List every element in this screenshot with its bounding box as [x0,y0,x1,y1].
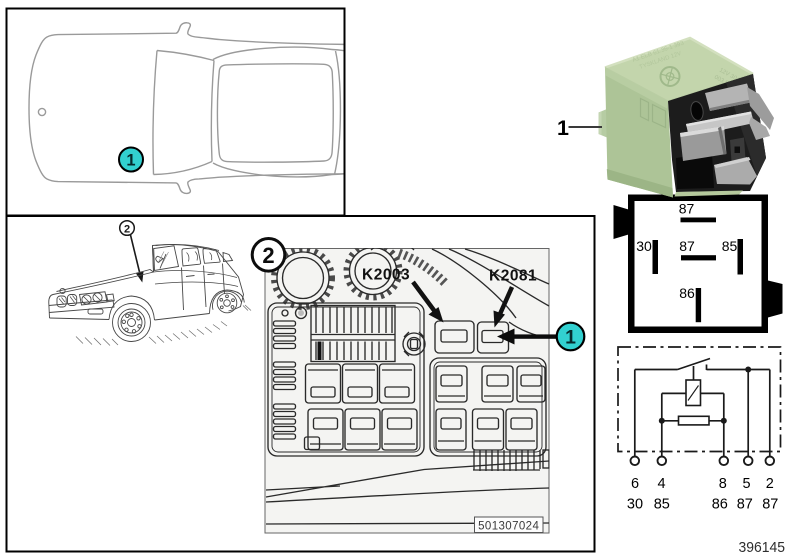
svg-text:4: 4 [657,476,665,492]
svg-text:87: 87 [762,497,778,513]
svg-text:8: 8 [719,476,727,492]
svg-text:87: 87 [737,497,753,513]
svg-text:87: 87 [679,238,695,254]
svg-text:K2081: K2081 [489,268,537,285]
svg-text:86: 86 [712,497,728,513]
svg-text:501307024: 501307024 [478,520,539,532]
svg-text:2: 2 [124,223,130,235]
svg-text:85: 85 [722,238,738,254]
svg-text:5: 5 [742,476,750,492]
svg-text:87: 87 [679,200,695,216]
svg-text:2: 2 [766,476,774,492]
svg-text:K2003: K2003 [362,267,410,284]
svg-text:30: 30 [636,238,652,254]
svg-text:2: 2 [262,243,274,268]
svg-text:1: 1 [565,327,576,349]
svg-text:85: 85 [654,497,670,513]
svg-text:1: 1 [557,116,569,140]
svg-text:6: 6 [631,476,639,492]
svg-text:1: 1 [126,152,135,170]
svg-text:396145: 396145 [739,539,786,556]
svg-text:86: 86 [679,285,695,301]
svg-text:30: 30 [627,497,643,513]
